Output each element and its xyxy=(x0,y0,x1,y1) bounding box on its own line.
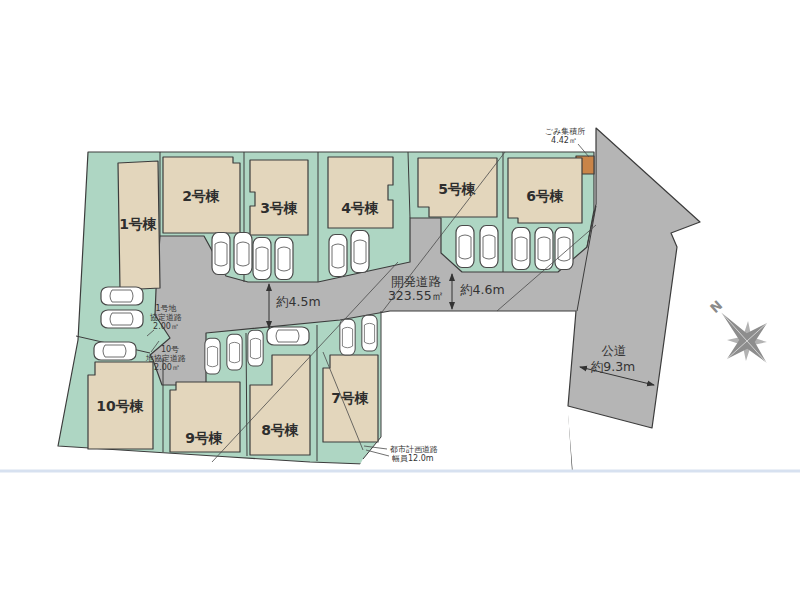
car-icon xyxy=(227,334,242,370)
building-4-label: 4号棟 xyxy=(341,200,379,216)
building-9-label: 9号棟 xyxy=(185,430,223,446)
site-plan-page: 1号棟 2号棟 3号棟 4号棟 5号棟 6号棟 7号棟 8号棟 9号棟 10号棟 xyxy=(0,0,800,600)
car-icon xyxy=(275,238,293,280)
agreement-road-10-line2: 地協定道路 xyxy=(145,354,186,363)
building-3 xyxy=(250,160,308,235)
development-road-label: 開発道路 xyxy=(391,274,442,289)
building-5-label: 5号棟 xyxy=(438,181,476,197)
car-icon xyxy=(362,315,377,351)
building-4 xyxy=(328,157,393,228)
development-road-area: 323.55㎡ xyxy=(388,288,444,303)
agreement-road-10-line3: 2.00㎡ xyxy=(154,363,180,372)
car-icon xyxy=(253,238,271,280)
city-planning-road-width: 幅員12.0m xyxy=(392,454,434,463)
car-icon xyxy=(480,226,498,268)
public-road-width: 約9.3m xyxy=(591,359,636,374)
site-plan-drawing: 1号棟 2号棟 3号棟 4号棟 5号棟 6号棟 7号棟 8号棟 9号棟 10号棟 xyxy=(0,0,800,600)
building-2-label: 2号棟 xyxy=(182,188,220,204)
car-icon xyxy=(512,228,530,270)
car-icon xyxy=(212,233,230,275)
car-icon xyxy=(340,319,355,355)
agreement-road-1-line2: 協定道路 xyxy=(150,313,182,322)
building-6-label: 6号棟 xyxy=(526,188,564,204)
building-1-label: 1号棟 xyxy=(119,216,157,232)
road-width-a: 約4.5m xyxy=(276,294,321,309)
agreement-road-10-line1: 10号 xyxy=(161,345,179,354)
building-3-label: 3号棟 xyxy=(260,200,298,216)
car-icon xyxy=(267,327,309,345)
city-planning-road-area xyxy=(356,311,576,472)
agreement-road-1-line1: 1号地 xyxy=(155,304,176,313)
car-icon xyxy=(205,338,220,374)
building-7-label: 7号棟 xyxy=(331,390,369,406)
bottom-rule xyxy=(0,470,800,473)
car-icon xyxy=(101,287,143,305)
garbage-station-area: 4.42㎡ xyxy=(551,136,577,145)
road-width-b: 約4.6m xyxy=(460,282,505,297)
car-icon xyxy=(456,226,474,268)
compass-rose: N xyxy=(690,282,787,381)
car-icon xyxy=(234,233,252,275)
car-icon xyxy=(94,342,136,360)
building-10-label: 10号棟 xyxy=(96,398,143,414)
building-8-label: 8号棟 xyxy=(261,422,299,438)
car-icon xyxy=(351,231,369,273)
garbage-station-label: ごみ集積所 xyxy=(545,127,585,136)
car-icon xyxy=(248,330,263,366)
public-road-label: 公道 xyxy=(602,343,627,358)
compass-north-label: N xyxy=(707,298,725,316)
car-icon xyxy=(535,228,553,270)
car-icon xyxy=(101,310,143,328)
agreement-road-1-line3: 2.00㎡ xyxy=(153,322,179,331)
car-icon xyxy=(555,228,573,270)
car-icon xyxy=(329,235,347,277)
city-planning-road-label: 都市計画道路 xyxy=(389,445,438,454)
